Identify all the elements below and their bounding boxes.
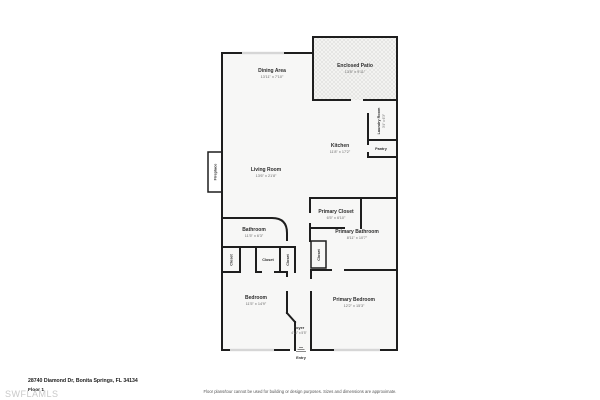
property-address: 28740 Diamond Dr, Bonita Springs, FL 341… bbox=[28, 378, 138, 384]
living-room-dims: 13'6" x 21'8" bbox=[256, 174, 277, 178]
primary-bathroom-dims: 8'11" x 10'7" bbox=[347, 236, 368, 240]
fireplace-label: Fireplace bbox=[214, 164, 218, 181]
pantry-label: Pantry bbox=[375, 147, 388, 151]
primary-closet-label: Primary Closet bbox=[318, 209, 354, 215]
hall-closet-label: Closet bbox=[317, 248, 321, 260]
entry-label: Entry bbox=[296, 356, 307, 360]
enclosed-patio-dims: 13'8" x 9'11" bbox=[345, 70, 366, 74]
primary-bedroom-dims: 12'2" x 15'3" bbox=[344, 304, 365, 308]
laundry-room-label: Laundry Room bbox=[377, 107, 381, 134]
footer: 28740 Diamond Dr, Bonita Springs, FL 341… bbox=[5, 378, 396, 399]
kitchen-dims: 11'8" x 17'2" bbox=[330, 150, 351, 154]
bedroom-dims: 11'5" x 14'9" bbox=[246, 302, 267, 306]
enclosed-patio-label: Enclosed Patio bbox=[337, 63, 373, 69]
bedroom-label: Bedroom bbox=[245, 295, 268, 301]
floorplan-drawing: Dining Area 13'11" x 7'10" Enclosed Pati… bbox=[0, 0, 600, 400]
bathroom-label: Bathroom bbox=[242, 227, 266, 233]
kitchen-label: Kitchen bbox=[331, 143, 349, 149]
mls-watermark: SWFLAMLS bbox=[5, 389, 59, 399]
floorplan-page: Dining Area 13'11" x 7'10" Enclosed Pati… bbox=[0, 0, 600, 400]
living-room-label: Living Room bbox=[251, 167, 282, 173]
bathroom-dims: 11'5" x 6'3" bbox=[245, 234, 264, 238]
primary-closet-dims: 6'5" x 6'10" bbox=[327, 216, 346, 220]
foyer-dims: 4'11" x 5'5" bbox=[291, 331, 306, 335]
closet-right-label: Closet bbox=[286, 253, 290, 265]
dining-area-dims: 13'11" x 7'10" bbox=[261, 75, 284, 79]
dining-area-label: Dining Area bbox=[258, 68, 286, 74]
laundry-room-dims: 3'4" x 6'3" bbox=[382, 114, 386, 128]
closet-center-label: Closet bbox=[262, 258, 274, 262]
foyer-label: Foyer bbox=[294, 326, 305, 330]
primary-bathroom-label: Primary Bathroom bbox=[335, 229, 379, 235]
disclaimer-text: Floor plans/tour cannot be used for buil… bbox=[204, 389, 397, 394]
closet-left-label: Closet bbox=[230, 253, 234, 265]
primary-bedroom-label: Primary Bedroom bbox=[333, 297, 376, 303]
